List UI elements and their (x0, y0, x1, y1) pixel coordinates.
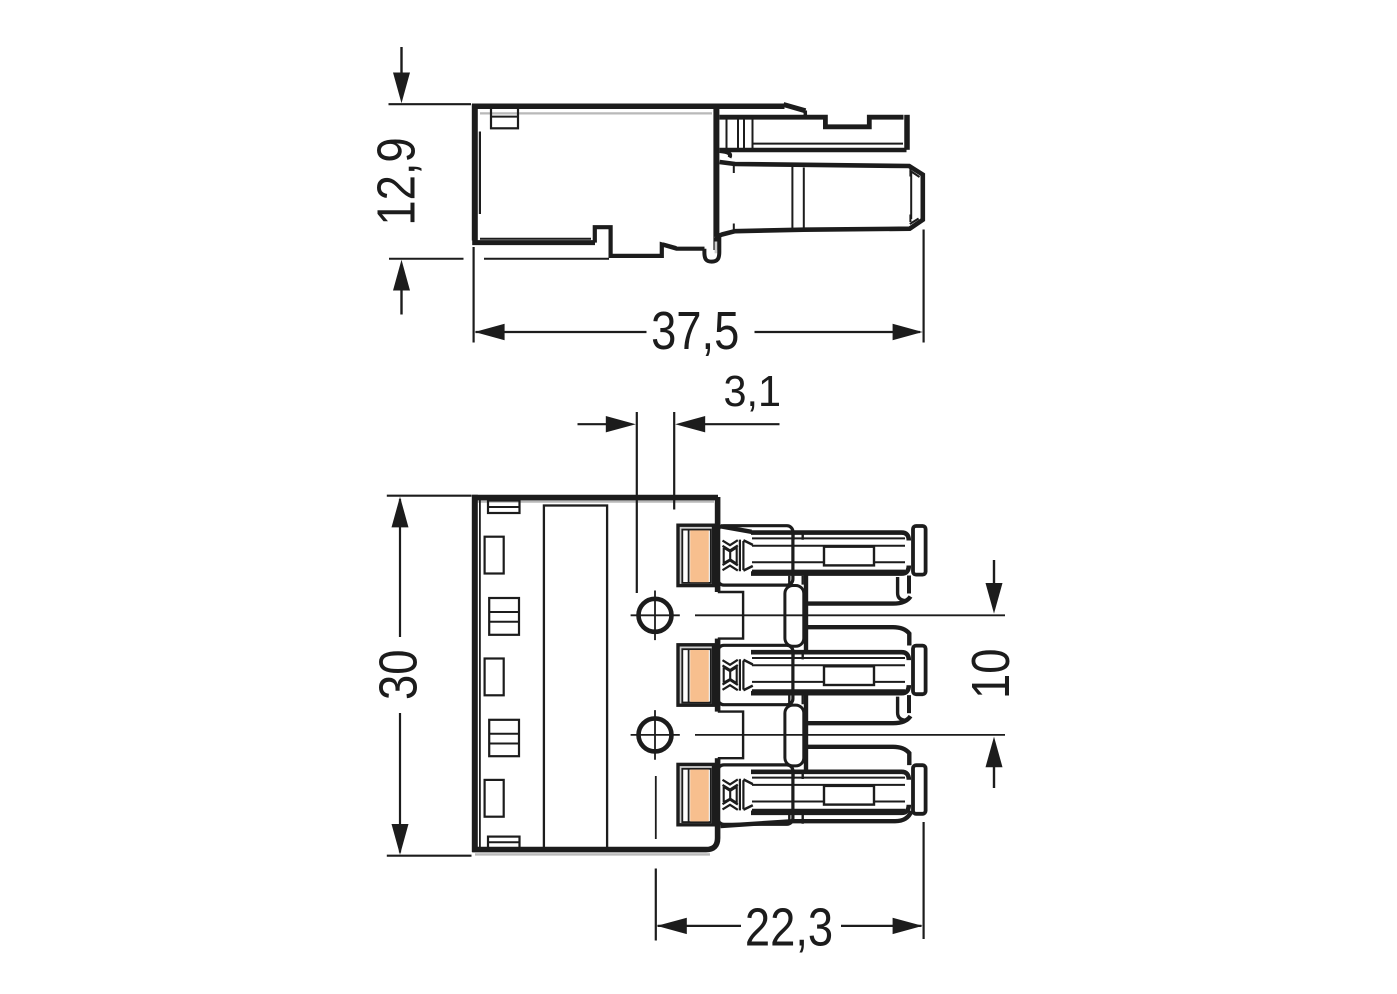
svg-text:22,3: 22,3 (745, 897, 833, 958)
svg-text:37,5: 37,5 (651, 300, 739, 361)
svg-text:10: 10 (960, 649, 1021, 699)
svg-text:30: 30 (368, 650, 429, 700)
svg-text:12,9: 12,9 (366, 137, 427, 225)
svg-text:3,1: 3,1 (723, 367, 780, 416)
